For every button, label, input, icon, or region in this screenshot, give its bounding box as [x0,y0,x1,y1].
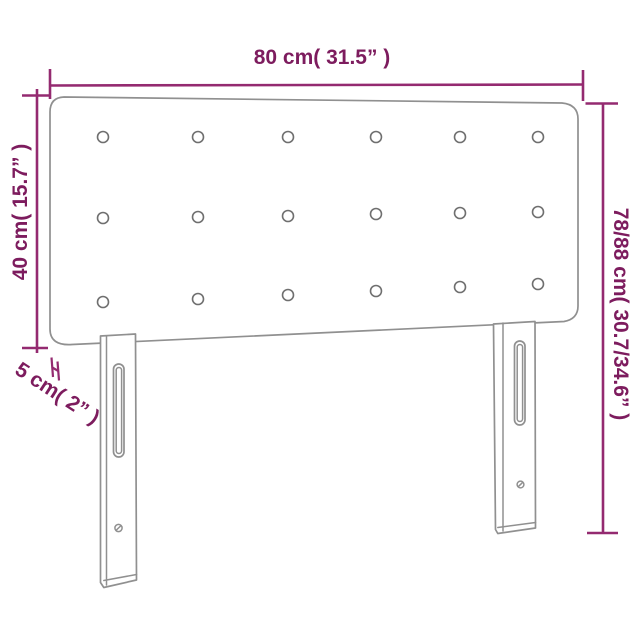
tufting-button [533,132,544,143]
tufting-button [371,286,382,297]
tufting-button [98,213,109,224]
tufting-button [455,208,466,219]
tufting-button [193,294,204,305]
headboard-line-art [0,0,640,640]
width-dimension-rule [50,85,583,86]
tufting-button [193,212,204,223]
tufting-button [283,290,294,301]
width-dimension-label: 80 cm( 31.5” ) [254,47,391,69]
right-leg-slot [515,341,526,425]
tufting-button [533,207,544,218]
tufting-button [193,132,204,143]
headboard-outline [50,97,578,345]
tufting-button [283,132,294,143]
tufting-button [533,279,544,290]
left-leg [101,334,137,588]
tufting-button [371,209,382,220]
left-height-dimension-label: 40 cm( 15.7” ) [10,144,32,281]
tufting-button [283,211,294,222]
right-height-dimension-label: 78/88 cm( 30.7/34.6” ) [609,208,631,420]
tufting-button [98,297,109,308]
left-leg-slot [114,364,125,457]
width-dimension-line [50,69,583,101]
dimension-diagram: 80 cm( 31.5” ) 40 cm( 15.7” ) 78/88 cm( … [0,0,640,640]
tufting-button [455,132,466,143]
tufting-button [98,132,109,143]
tufting-button [455,282,466,293]
right-leg [494,322,536,534]
tufting-button [371,132,382,143]
